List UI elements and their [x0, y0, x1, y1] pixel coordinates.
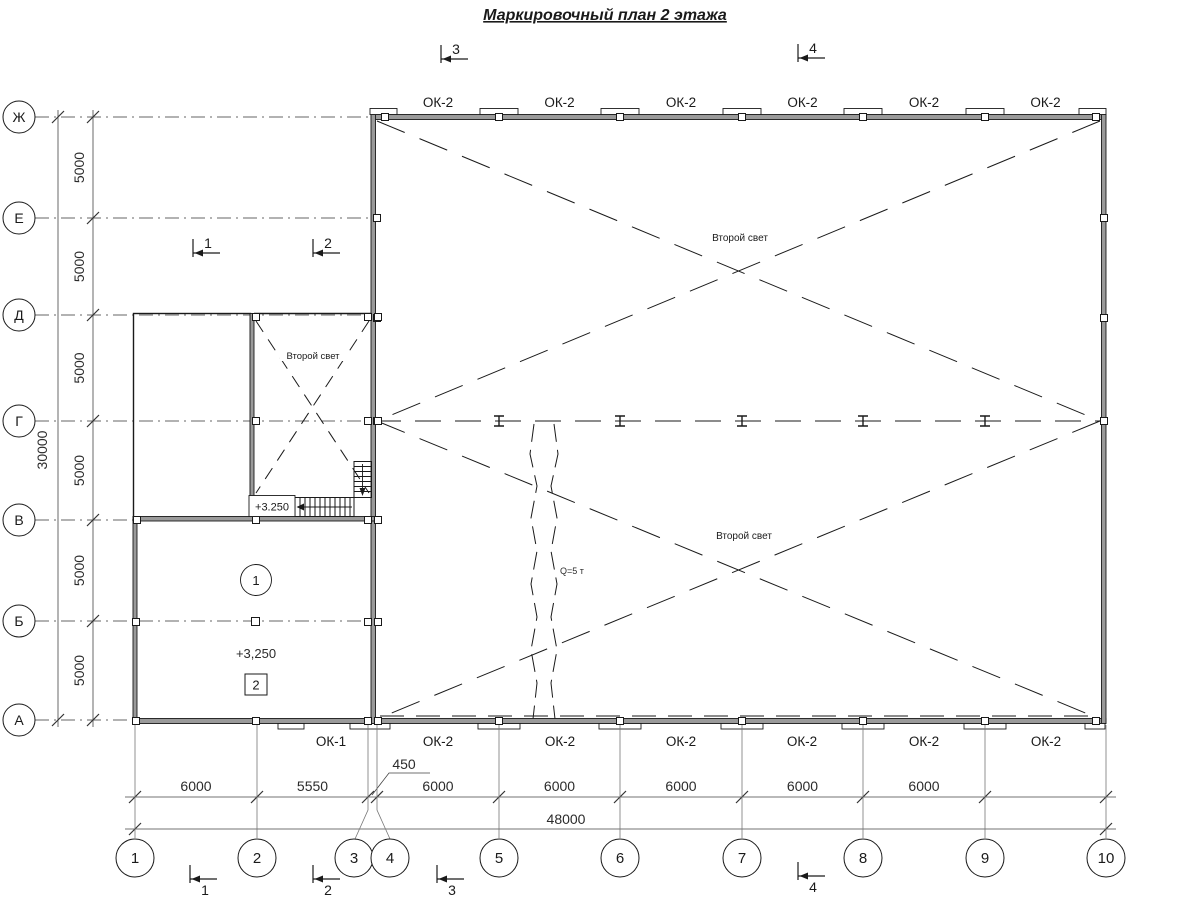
col-axis-label: 7 — [738, 850, 746, 867]
window-label-top: ОК-2 — [787, 95, 817, 110]
dim-bottom-segment: 6000 — [180, 778, 211, 794]
col-axis-label: 1 — [131, 850, 139, 867]
crane-runway — [530, 424, 558, 719]
dim-bottom-segment: 6000 — [665, 778, 696, 794]
dim-bottom-segment: 6000 — [422, 778, 453, 794]
left-dimension-texts: 500050005000500050005000 — [71, 152, 87, 686]
drawing-title: Маркировочный план 2 этажа — [483, 7, 727, 24]
dim-bottom-segment: 6000 — [908, 778, 939, 794]
window-label-top: ОК-2 — [909, 95, 939, 110]
row-axis-label: Б — [14, 613, 23, 629]
room-number-circle: 1 — [252, 573, 259, 588]
window-label-bottom: ОК-2 — [909, 734, 939, 749]
annex-internal-wall — [250, 314, 254, 518]
window-label-top: ОК-2 — [544, 95, 574, 110]
row-axis-bubbles: ЖЕДГВБА — [3, 101, 35, 736]
section-cut-markers: 34121234 — [190, 40, 825, 898]
window-label-top: ОК-2 — [423, 95, 453, 110]
col-axis-label: 2 — [253, 850, 261, 867]
section-marker-label: 3 — [448, 882, 456, 898]
dim-left-overall: 30000 — [34, 430, 50, 469]
plan-canvas: Маркировочный план 2 этажа Q=5 т — [0, 0, 1200, 900]
section-marker-label: 2 — [324, 235, 332, 251]
window-label-bottom: ОК-2 — [423, 734, 453, 749]
row-axis-label: Ж — [13, 109, 26, 125]
second-light-label-annex: Второй свет — [286, 351, 340, 362]
row-axis-label: Д — [14, 307, 24, 323]
dim-450-leader — [372, 773, 430, 795]
dim-left-segment: 5000 — [71, 655, 87, 686]
floor-plan-drawing: Маркировочный план 2 этажа Q=5 т — [0, 0, 1200, 900]
second-light-cross-braces — [256, 121, 1100, 719]
room-number-box: 2 — [252, 678, 259, 693]
col-axis-label: 4 — [386, 850, 394, 867]
dim-left-segment: 5000 — [71, 455, 87, 486]
dim-left-segment: 5000 — [71, 352, 87, 383]
window-label-bottom: ОК-1 — [316, 734, 346, 749]
top-window-labels: ОК-2ОК-2ОК-2ОК-2ОК-2ОК-2 — [423, 95, 1061, 110]
crane-capacity-label: Q=5 т — [560, 566, 584, 576]
dim-bottom-segment: 6000 — [787, 778, 818, 794]
col-axis-label: 5 — [495, 850, 503, 867]
extension-lines — [135, 725, 1106, 839]
row-axis-label: А — [14, 712, 24, 728]
window-label-bottom: ОК-2 — [787, 734, 817, 749]
col-axis-label: 3 — [350, 850, 358, 867]
dimension-ticks — [52, 111, 1112, 835]
stair-level-label: +3.250 — [255, 502, 289, 514]
bottom-window-labels: ОК-1ОК-2ОК-2ОК-2ОК-2ОК-2ОК-2 — [316, 734, 1061, 749]
section-marker-label: 4 — [809, 879, 817, 895]
dim-left-segment: 5000 — [71, 555, 87, 586]
col-axis-label: 6 — [616, 850, 624, 867]
bottom-dimension-texts: 6000555045060006000600060006000 — [180, 756, 939, 794]
window-label-bottom: ОК-2 — [545, 734, 575, 749]
wall-pilasters — [278, 109, 1106, 730]
dim-left-segment: 5000 — [71, 251, 87, 282]
col-axis-label: 8 — [859, 850, 867, 867]
second-light-label-lower: Второй свет — [716, 531, 772, 542]
window-label-top: ОК-2 — [666, 95, 696, 110]
col-axis-label: 9 — [981, 850, 989, 867]
row-axis-label: В — [14, 512, 23, 528]
dim-bottom-segment: 5550 — [297, 778, 328, 794]
window-label-bottom: ОК-2 — [1031, 734, 1061, 749]
section-marker-label: 1 — [204, 235, 212, 251]
second-light-label-upper: Второй свет — [712, 233, 768, 244]
dim-bottom-overall: 48000 — [547, 811, 586, 827]
axis-grid-lines — [35, 117, 1101, 720]
col-axis-bubbles: 12345678910 — [116, 839, 1125, 877]
window-label-bottom: ОК-2 — [666, 734, 696, 749]
section-marker-label: 3 — [452, 41, 460, 57]
second-light-labels: Второй свет Второй свет Второй свет — [280, 230, 786, 542]
col-axis-label: 10 — [1098, 850, 1115, 867]
dim-left-segment: 5000 — [71, 152, 87, 183]
section-marker-label: 2 — [324, 882, 332, 898]
section-marker-label: 4 — [809, 40, 817, 56]
free-column-marker — [252, 618, 260, 626]
window-label-top: ОК-2 — [1030, 95, 1060, 110]
dim-bottom-segment: 450 — [392, 756, 416, 772]
dim-bottom-segment: 6000 — [544, 778, 575, 794]
row-axis-label: Е — [14, 210, 23, 226]
row-axis-label: Г — [15, 413, 23, 429]
room-tags: 1 +3,250 2 — [224, 565, 288, 696]
annex-upper-room — [134, 314, 251, 518]
room-level-label: +3,250 — [236, 646, 276, 661]
section-marker-label: 1 — [201, 882, 209, 898]
